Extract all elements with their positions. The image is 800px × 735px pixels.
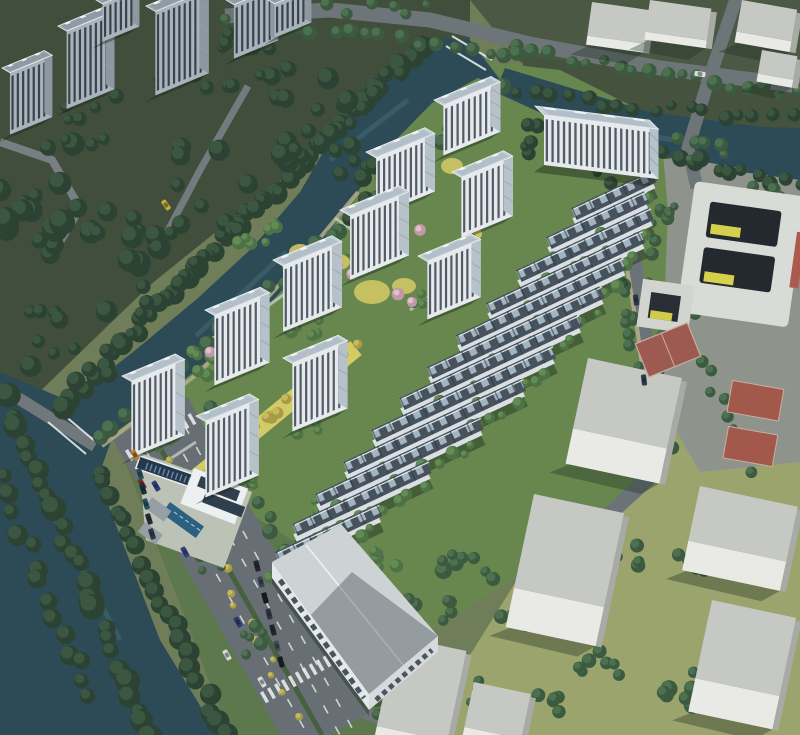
- facade-window-stripe: [322, 354, 324, 415]
- facade-window-stripe: [569, 122, 571, 164]
- facade-window-stripe: [362, 214, 364, 271]
- tree-highlight: [64, 115, 70, 121]
- tree-highlight: [690, 136, 699, 145]
- blossom-tree-highlight: [394, 290, 400, 296]
- facade-window-stripe: [445, 108, 447, 151]
- facade-window-stripe: [462, 101, 464, 144]
- facade-window-stripe: [445, 257, 447, 308]
- facade-window-stripe: [317, 255, 319, 314]
- tree-highlight: [86, 139, 94, 147]
- tree-highlight: [65, 545, 77, 557]
- tree-highlight: [662, 68, 671, 77]
- tree-highlight: [254, 637, 263, 646]
- tree-highlight: [69, 199, 81, 211]
- facade-window-stripe: [352, 218, 354, 275]
- tree-highlight: [94, 431, 103, 440]
- facade-window-stripe: [258, 0, 260, 45]
- facade-window-stripe: [474, 96, 476, 139]
- tree-highlight: [343, 137, 354, 148]
- tree-highlight: [281, 394, 287, 400]
- tree-highlight: [597, 101, 606, 110]
- tree-highlight: [390, 560, 398, 568]
- tree-highlight: [73, 112, 82, 121]
- tree-highlight: [667, 101, 673, 107]
- tree-highlight: [195, 199, 204, 208]
- tree-highlight: [627, 66, 633, 72]
- tree-highlight: [230, 603, 234, 607]
- facade-window-stripe: [450, 255, 452, 306]
- tree-highlight: [42, 497, 58, 513]
- facade-window-stripe: [184, 3, 186, 80]
- tree-highlight: [474, 676, 481, 683]
- tree-highlight: [29, 460, 42, 473]
- facade-window-stripe: [162, 12, 164, 89]
- blossom-tree-highlight: [408, 298, 414, 304]
- tree-highlight: [170, 629, 184, 643]
- tree-highlight: [395, 30, 404, 39]
- tree-highlight: [685, 681, 694, 690]
- tree-highlight: [200, 336, 211, 347]
- tree-highlight: [372, 709, 379, 716]
- tree-highlight: [264, 572, 271, 579]
- facade-window-stripe: [415, 145, 417, 196]
- tree-highlight: [173, 216, 185, 228]
- tree-highlight: [75, 674, 84, 683]
- tree-highlight: [353, 340, 359, 346]
- tree-highlight: [78, 572, 93, 587]
- tree-highlight: [56, 518, 67, 529]
- facade-window-stripe: [138, 382, 140, 451]
- tree-highlight: [98, 203, 110, 215]
- tree-highlight: [481, 567, 487, 573]
- facade-window-stripe: [239, 411, 241, 480]
- facade-window-stripe: [234, 413, 236, 482]
- facade-window-stripe: [384, 205, 386, 262]
- facade-window-stripe: [327, 251, 329, 310]
- tree-highlight: [735, 165, 742, 172]
- tree-highlight: [331, 26, 339, 34]
- tree-highlight: [634, 556, 641, 563]
- tree-highlight: [686, 155, 691, 160]
- tree-highlight: [746, 467, 753, 474]
- tree-highlight: [209, 141, 222, 154]
- tree-highlight: [102, 421, 113, 432]
- tree-highlight: [531, 376, 538, 383]
- tree-highlight: [100, 487, 112, 499]
- tree-highlight: [665, 210, 671, 216]
- tree-highlight: [422, 1, 427, 6]
- facade-window-stripe: [456, 253, 458, 304]
- tree-highlight: [446, 446, 455, 455]
- facade-window-stripe: [244, 306, 246, 369]
- tree-highlight: [341, 9, 348, 16]
- tree-highlight: [161, 606, 173, 618]
- tower-end-facade: [199, 0, 208, 73]
- tree-highlight: [91, 103, 98, 110]
- facade-window-stripe: [222, 316, 224, 379]
- facade-window-stripe: [130, 0, 132, 26]
- tree-highlight: [99, 620, 110, 631]
- tree-highlight: [420, 482, 427, 489]
- tree-highlight: [435, 459, 441, 465]
- tree-highlight: [672, 549, 680, 557]
- tree-highlight: [343, 24, 352, 33]
- tree-highlight: [486, 49, 492, 55]
- tree-highlight: [272, 408, 279, 415]
- facade-window-stripe: [609, 127, 611, 169]
- tree-highlight: [707, 76, 717, 86]
- facade-window-stripe: [591, 125, 593, 167]
- tree-highlight: [198, 566, 203, 571]
- facade-window-stripe: [410, 147, 412, 198]
- facade-window-stripe: [233, 311, 235, 374]
- tree-highlight: [767, 108, 775, 116]
- tree-highlight: [487, 573, 496, 582]
- facade-window-stripe: [316, 357, 318, 418]
- tree-highlight: [73, 555, 83, 565]
- facade-window-stripe: [580, 123, 582, 165]
- tree-highlight: [146, 226, 159, 239]
- facade-window-stripe: [480, 173, 482, 226]
- tree-highlight: [171, 275, 182, 286]
- tree-highlight: [179, 642, 192, 655]
- tree-highlight: [69, 343, 77, 351]
- tree-highlight: [485, 413, 492, 420]
- facade-window-stripe: [194, 0, 196, 75]
- tree-highlight: [495, 610, 504, 619]
- tree-highlight: [270, 657, 274, 661]
- aerial-site-rendering: [0, 0, 800, 735]
- facade-window-stripe: [133, 384, 135, 453]
- tree-highlight: [277, 90, 288, 101]
- facade-window-stripe: [22, 71, 24, 126]
- tree-highlight: [314, 426, 319, 431]
- facade-window-stripe: [68, 33, 70, 104]
- tree-highlight: [672, 133, 680, 141]
- facade-window-stripe: [115, 2, 117, 33]
- tree-highlight: [32, 335, 40, 343]
- facade-window-stripe: [125, 0, 127, 28]
- facade-window-stripe: [563, 121, 565, 163]
- tree-highlight: [113, 336, 125, 348]
- tree-highlight: [249, 620, 257, 628]
- tree-highlight: [360, 28, 368, 36]
- facade-window-stripe: [157, 14, 159, 91]
- tree-highlight: [49, 173, 63, 187]
- tree-highlight: [725, 84, 732, 91]
- facade-window-stripe: [212, 422, 214, 491]
- facade-window-stripe: [451, 105, 453, 148]
- tree-highlight: [631, 539, 640, 548]
- tree-highlight: [698, 137, 706, 145]
- facade-window-stripe: [120, 0, 122, 31]
- tree-highlight: [25, 306, 33, 314]
- tree-highlight: [145, 582, 157, 594]
- tree-highlight: [223, 28, 231, 36]
- tree-highlight: [16, 436, 28, 448]
- tree-highlight: [262, 412, 269, 419]
- tree-highlight: [61, 135, 68, 142]
- tree-highlight: [311, 103, 320, 112]
- tree-highlight: [511, 88, 518, 95]
- tree-highlight: [609, 659, 616, 666]
- facade-window-stripe: [302, 0, 304, 22]
- facade-window-stripe: [311, 359, 313, 420]
- tree-highlight: [461, 451, 466, 456]
- tree-highlight: [43, 610, 55, 622]
- tree-highlight: [389, 1, 396, 8]
- tree-highlight: [247, 200, 259, 212]
- tree-highlight: [115, 511, 125, 521]
- facade-window-stripe: [440, 259, 442, 310]
- facade-window-stripe: [294, 366, 296, 427]
- tree-highlight: [101, 367, 111, 377]
- facade-window-stripe: [79, 29, 81, 100]
- facade-window-stripe: [223, 417, 225, 486]
- tree-highlight: [57, 626, 69, 638]
- tree-highlight: [714, 165, 722, 173]
- facade-window-stripe: [189, 1, 191, 78]
- tree-highlight: [67, 372, 79, 384]
- tree-highlight: [262, 238, 267, 243]
- tree-highlight: [401, 9, 408, 16]
- tree-highlight: [131, 710, 145, 724]
- facade-window-stripe: [597, 126, 599, 168]
- tree-highlight: [133, 556, 145, 568]
- tree-highlight: [122, 227, 136, 241]
- facade-window-stripe: [173, 7, 175, 84]
- facade-window-stripe: [306, 259, 308, 318]
- tree-highlight: [634, 362, 641, 369]
- tree-highlight: [166, 457, 171, 462]
- tree-highlight: [116, 669, 131, 684]
- tree-highlight: [429, 38, 438, 47]
- facade-window-stripe: [252, 0, 254, 47]
- tree-highlight: [189, 257, 197, 265]
- facade-window-stripe: [27, 69, 29, 124]
- facade-window-stripe: [178, 5, 180, 82]
- facade-window-stripe: [492, 168, 494, 221]
- facade-window-stripe: [497, 166, 499, 219]
- facade-window-stripe: [637, 131, 639, 173]
- tree-highlight: [55, 536, 66, 547]
- facade-window-stripe: [290, 266, 292, 325]
- facade-window-stripe: [247, 2, 249, 49]
- tree-highlight: [582, 91, 592, 101]
- tree-highlight: [311, 497, 317, 503]
- tree-highlight: [719, 393, 726, 400]
- tree-highlight: [513, 398, 521, 406]
- tree-highlight: [467, 441, 472, 446]
- blossom-tree-highlight: [416, 226, 422, 232]
- tree-highlight: [140, 570, 153, 583]
- facade-window-stripe: [109, 4, 111, 35]
- tree-highlight: [394, 67, 403, 76]
- tree-highlight: [220, 37, 229, 46]
- tree-highlight: [443, 595, 450, 602]
- tree-highlight: [126, 211, 136, 221]
- tree-highlight: [745, 110, 753, 118]
- tree-highlight: [41, 140, 51, 150]
- facade-window-stripe: [255, 302, 257, 365]
- facade-window-stripe: [389, 203, 391, 260]
- tree-highlight: [137, 280, 146, 289]
- tree-highlight: [530, 85, 540, 95]
- tree-highlight: [548, 693, 556, 701]
- tree-highlight: [318, 69, 331, 82]
- facade-window-stripe: [276, 6, 278, 33]
- facade-window-stripe: [144, 379, 146, 448]
- tree-highlight: [140, 296, 150, 306]
- tree-highlight: [525, 44, 534, 53]
- tree-highlight: [201, 684, 214, 697]
- facade-window-stripe: [466, 248, 468, 299]
- facade-window-stripe: [89, 25, 91, 96]
- tree-highlight: [207, 711, 222, 726]
- facade-window-stripe: [620, 128, 622, 170]
- tree-highlight: [560, 341, 566, 347]
- tree-highlight: [263, 280, 271, 288]
- facade-window-stripe: [207, 424, 209, 493]
- tree-highlight: [268, 672, 272, 676]
- tree-highlight: [204, 401, 213, 410]
- tree-highlight: [628, 252, 635, 259]
- tree-highlight: [657, 686, 666, 695]
- facade-window-stripe: [227, 313, 229, 376]
- facade-window-stripe: [586, 124, 588, 166]
- tree-highlight: [74, 653, 85, 664]
- tree-highlight: [53, 397, 68, 412]
- tree-highlight: [329, 144, 338, 153]
- tree-highlight: [179, 658, 192, 671]
- tree-highlight: [355, 170, 366, 181]
- tree-highlight: [626, 103, 635, 112]
- tree-highlight: [4, 415, 19, 430]
- facade-window-stripe: [643, 131, 645, 173]
- tree-highlight: [334, 167, 343, 176]
- tree-highlight: [692, 151, 703, 162]
- tree-highlight: [498, 412, 503, 417]
- tree-highlight: [706, 365, 713, 372]
- tree-highlight: [652, 106, 659, 113]
- tree-highlight: [753, 169, 761, 177]
- facade-window-stripe: [170, 368, 172, 437]
- facade-window-stripe: [100, 20, 102, 91]
- tree-highlight: [622, 309, 628, 315]
- tree-highlight: [119, 686, 133, 700]
- car-cabin: [642, 377, 646, 382]
- tree-highlight: [48, 348, 56, 356]
- tree-highlight: [226, 79, 235, 88]
- tree-highlight: [450, 42, 457, 49]
- tree-highlight: [788, 109, 796, 117]
- tree-highlight: [582, 654, 591, 663]
- facade-window-stripe: [469, 177, 471, 230]
- facade-window-stripe: [626, 129, 628, 171]
- facade-window-stripe: [149, 377, 151, 446]
- tree-highlight: [80, 595, 96, 611]
- facade-window-stripe: [292, 0, 294, 27]
- tree-highlight: [241, 233, 247, 239]
- tree-highlight: [414, 41, 421, 48]
- facade-window-stripe: [263, 0, 265, 43]
- tree-highlight: [193, 350, 200, 357]
- facade-window-stripe: [74, 31, 76, 102]
- tree-highlight: [172, 147, 184, 159]
- tree-highlight: [646, 248, 654, 256]
- facade-window-stripe: [281, 4, 283, 31]
- facade-window-stripe: [33, 66, 35, 121]
- tree-highlight: [40, 593, 51, 604]
- tree-highlight: [349, 156, 357, 164]
- facade-window-stripe: [378, 207, 380, 264]
- tree-highlight: [438, 616, 445, 623]
- facade-window-stripe: [546, 119, 548, 161]
- tree-highlight: [97, 301, 111, 315]
- facade-window-stripe: [244, 408, 246, 477]
- tree-highlight: [366, 157, 377, 168]
- facade-window-stripe: [322, 253, 324, 312]
- tree-highlight: [733, 110, 740, 117]
- tree-highlight: [372, 28, 380, 36]
- tree-highlight: [623, 329, 631, 337]
- facade-window-stripe: [394, 201, 396, 258]
- tree-highlight: [231, 223, 242, 234]
- tree-highlight: [61, 646, 73, 658]
- tree-highlight: [394, 495, 402, 503]
- tree-highlight: [34, 305, 43, 314]
- facade-window-stripe: [238, 309, 240, 372]
- facade-window-stripe: [461, 251, 463, 302]
- facade-window-stripe: [327, 352, 329, 413]
- tree-highlight: [150, 240, 161, 251]
- facade-window-stripe: [429, 264, 431, 315]
- tree-highlight: [355, 530, 364, 539]
- facade-window-stripe: [305, 361, 307, 422]
- facade-window-stripe: [228, 415, 230, 484]
- facade-window-stripe: [236, 7, 238, 54]
- facade-window-stripe: [168, 9, 170, 86]
- facade-window-stripe: [165, 371, 167, 440]
- facade-window-stripe: [295, 264, 297, 323]
- tree-highlight: [581, 59, 587, 65]
- tree-highlight: [314, 135, 325, 146]
- tree-highlight: [100, 344, 109, 353]
- tree-highlight: [466, 43, 475, 52]
- tree-highlight: [91, 226, 100, 235]
- tree-highlight: [273, 186, 282, 195]
- facade-window-stripe: [38, 64, 40, 119]
- tree-highlight: [239, 175, 251, 187]
- tree-highlight: [151, 597, 162, 608]
- tree-highlight: [232, 236, 241, 245]
- tree-highlight: [611, 280, 620, 289]
- tree-highlight: [200, 81, 209, 90]
- tree-highlight: [32, 233, 42, 243]
- tree-highlight: [221, 14, 228, 21]
- tree-highlight: [437, 556, 444, 563]
- tree-highlight: [510, 46, 519, 55]
- rendering-canvas: [0, 0, 800, 735]
- tree-highlight: [240, 631, 245, 636]
- tree-highlight: [468, 552, 476, 560]
- tree-highlight: [302, 124, 311, 133]
- tree-highlight: [29, 189, 38, 198]
- tree-highlight: [50, 210, 66, 226]
- facade-window-stripe: [297, 0, 299, 24]
- tree-highlight: [722, 166, 732, 176]
- tree-highlight: [779, 172, 788, 181]
